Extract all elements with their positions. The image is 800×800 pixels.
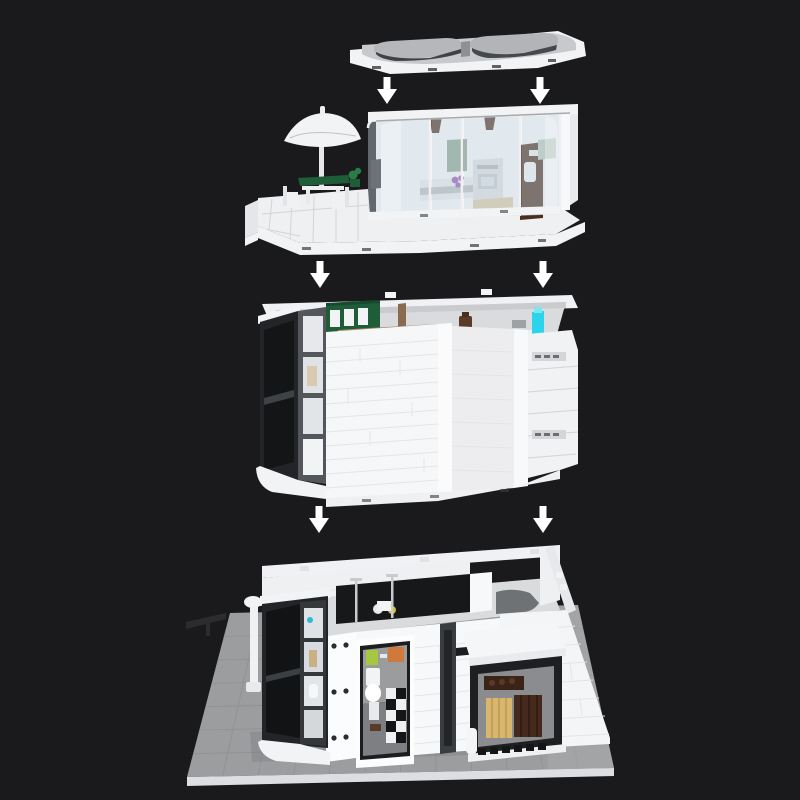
column-window	[303, 398, 323, 434]
facade-tab	[377, 601, 391, 611]
firewood-dark	[514, 695, 542, 737]
terrace-chair	[332, 187, 349, 209]
wall-stud	[560, 584, 567, 590]
vase-lid	[462, 312, 469, 317]
printed-vent-tile	[532, 352, 566, 361]
window-inner-item	[307, 366, 317, 386]
terrace-step	[245, 200, 258, 238]
checker-floor	[386, 688, 406, 743]
rim-tab	[481, 289, 492, 295]
counter-item	[512, 320, 526, 328]
down-arrow	[310, 261, 330, 288]
ground-floor-section	[186, 545, 614, 786]
cabinet-door	[330, 310, 340, 327]
shelf-item	[380, 654, 387, 658]
cabinet-door	[344, 309, 354, 326]
lamp-pole	[250, 606, 258, 685]
rim-tab	[385, 292, 396, 298]
roof-section	[350, 31, 586, 74]
potted-plant	[349, 168, 362, 187]
cabinet-door	[358, 308, 368, 325]
firewood-gold	[486, 698, 512, 738]
bay-window-pane	[266, 604, 300, 676]
wall-stud	[556, 572, 563, 578]
towel-orange	[388, 647, 404, 662]
roof-center-seam	[461, 41, 470, 57]
middle-floor-section	[256, 289, 578, 507]
facade-walls	[326, 323, 578, 507]
top-floor-section	[245, 104, 585, 255]
bay-window-pane	[266, 674, 300, 738]
parasol-canopy	[284, 113, 361, 147]
down-arrow	[533, 261, 553, 288]
wood-item	[370, 724, 381, 731]
table-top	[298, 175, 350, 186]
lamp-head	[244, 596, 262, 608]
curved-glass-walls	[368, 110, 560, 216]
white-cabinet	[470, 572, 492, 613]
corner-window-bay-lower	[258, 588, 330, 765]
lamp-base	[246, 682, 261, 692]
column-window	[303, 439, 323, 475]
black-corner-post	[206, 619, 210, 636]
wall-stud	[530, 549, 539, 554]
fireplace	[462, 622, 566, 762]
glass-panel	[432, 114, 462, 214]
glass-panel	[464, 112, 520, 216]
bathroom-window	[356, 635, 414, 768]
towel-lime	[366, 650, 378, 665]
stud-pillar	[326, 632, 356, 762]
glass-column-pane	[304, 676, 323, 706]
glass-column-pane	[304, 710, 323, 738]
table-leg	[306, 190, 310, 204]
glass-reflection	[381, 121, 401, 213]
glass-corner-highlight	[545, 115, 558, 212]
glass-column-pane	[304, 642, 323, 672]
wall-pillar	[438, 323, 452, 496]
glass-room	[368, 104, 578, 220]
cyan-sculpture-top	[534, 307, 542, 313]
exploded-house-illustration	[0, 0, 800, 800]
wall-pillar	[514, 329, 528, 488]
exploded-view-product-image	[0, 0, 800, 800]
bay-window-pane	[264, 397, 294, 470]
terrace-chair	[283, 186, 298, 208]
parasol-finial	[320, 106, 325, 115]
white-roll	[466, 728, 477, 754]
printed-vent-tile	[532, 430, 566, 439]
glass-column-pane	[304, 608, 323, 638]
down-arrow	[309, 506, 329, 533]
wall-stud	[420, 557, 429, 562]
corner-window-bay	[256, 305, 326, 499]
column-window	[303, 316, 323, 352]
wall-stud	[300, 566, 309, 571]
down-arrow	[377, 77, 397, 104]
down-arrow	[533, 506, 553, 533]
down-arrow	[530, 77, 550, 104]
bay-window-pane	[264, 320, 294, 398]
